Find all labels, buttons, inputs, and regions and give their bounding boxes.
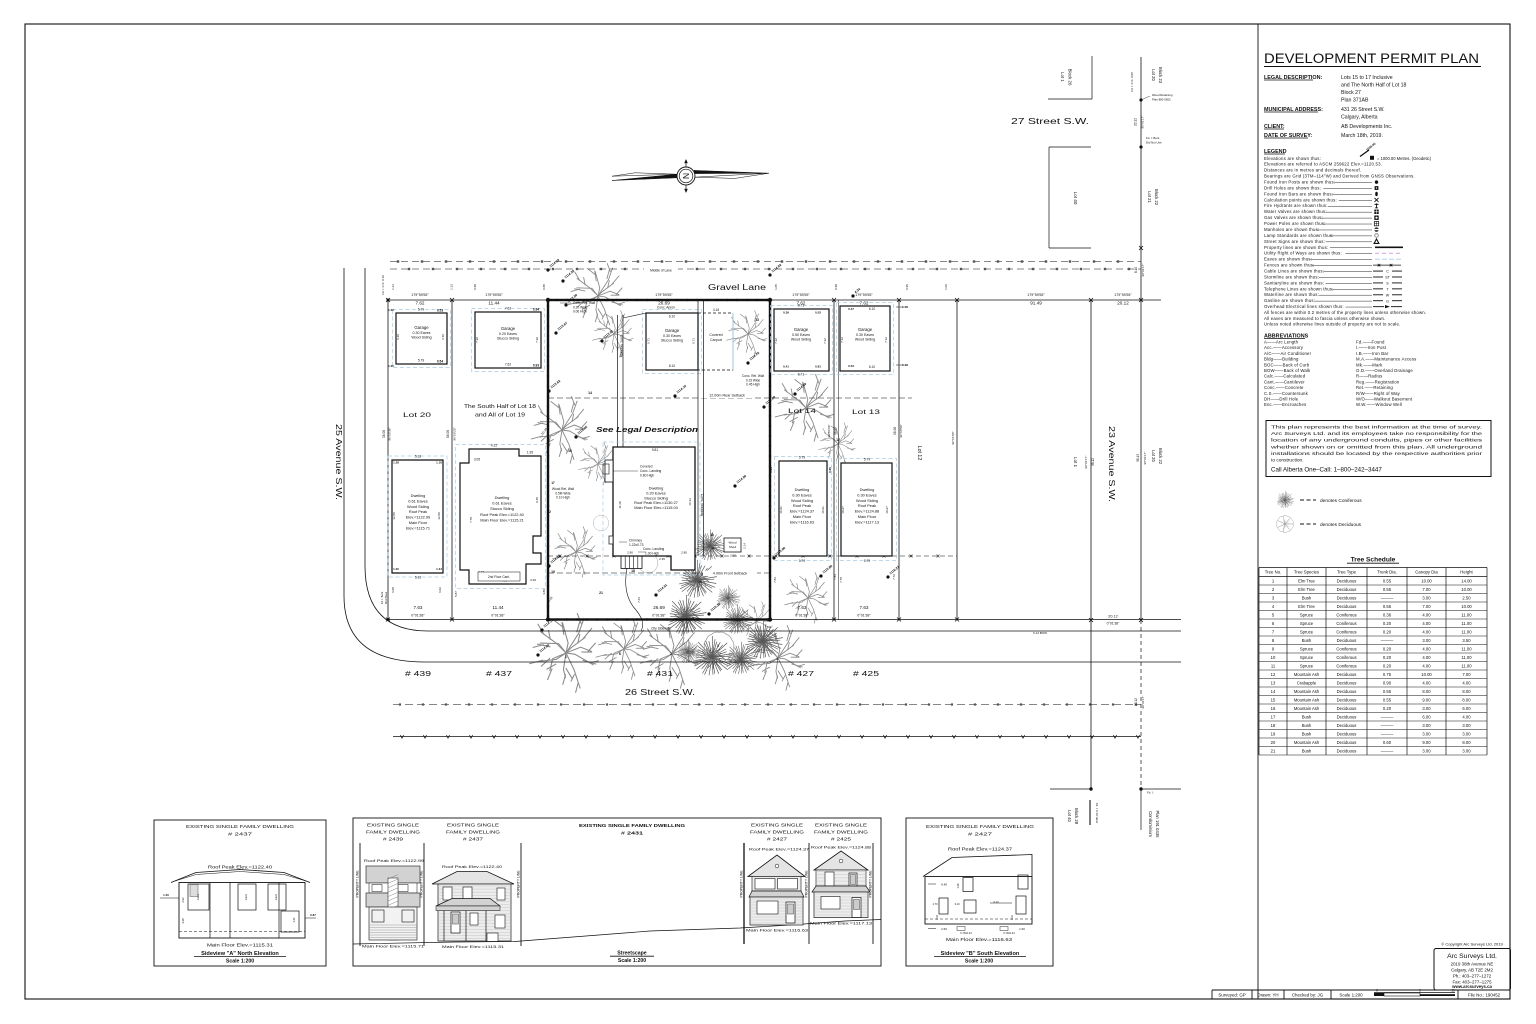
svg-text:3.00: 3.00 [1422,749,1431,754]
svg-text:Bearings are Grid (3TM–114°W): Bearings are Grid (3TM–114°W) and Derive… [1264,174,1415,179]
svg-text:6.71: 6.71 [647,338,651,344]
svg-text:4.00: 4.00 [1422,681,1431,686]
svg-text:18: 18 [631,569,635,573]
svg-text:Main Floor: Main Floor [409,520,428,525]
svg-text:21: 21 [599,591,603,595]
svg-text:90°01'17": 90°01'17" [1143,452,1147,465]
svg-text:Chimney: Chimney [629,539,642,543]
svg-text:Elm Tree: Elm Tree [1298,579,1315,584]
svg-text:Dwelling: Dwelling [795,487,810,492]
svg-text:Wood Siding: Wood Siding [791,498,813,503]
svg-text:0.30 Eaves: 0.30 Eaves [663,334,681,338]
svg-text:FAMILY DWELLING: FAMILY DWELLING [366,830,421,835]
svg-text:denotes Deciduous: denotes Deciduous [1320,522,1362,528]
svg-text:Deciduous: Deciduous [1337,740,1357,745]
svg-text:Fd. I. C.S. 0.08: Fd. I. C.S. 0.08 [1130,72,1134,92]
svg-text:6.08: 6.08 [391,587,395,593]
svg-text:2.60: 2.60 [941,927,947,931]
svg-text:7.78: 7.78 [839,577,843,583]
svg-text:3.10: 3.10 [954,902,960,906]
svg-text:0.36: 0.36 [1383,613,1392,618]
svg-text:Mountain Ash: Mountain Ash [1294,689,1320,694]
svg-text:Coniferous: Coniferous [1336,613,1356,618]
svg-text:ST: ST [1385,276,1390,280]
svg-text:12.80: 12.80 [437,512,441,520]
svg-text:3.00: 3.00 [1462,723,1471,728]
svg-text:90°01'17": 90°01'17" [1141,116,1145,129]
svg-text:6.40: 6.40 [396,334,400,340]
svg-text:# 2437: # 2437 [463,837,484,842]
svg-text:Wood Retaining: Wood Retaining [1152,93,1173,97]
svg-text:6.40: 6.40 [441,334,445,340]
svg-text:7.62: 7.62 [505,307,511,311]
svg-text:10.97: 10.97 [841,506,845,514]
svg-text:11.00: 11.00 [1461,613,1472,618]
svg-text:Calc.——Calculated: Calc.——Calculated [1264,374,1306,379]
svg-text:4.00: 4.00 [1422,630,1431,635]
svg-text:Bush: Bush [1302,715,1312,720]
svg-text:Ph.: 403–277–1272: Ph.: 403–277–1272 [1453,974,1492,979]
svg-text:0.70x0.24: 0.70x0.24 [960,931,972,935]
svg-text:4.00: 4.00 [1462,715,1471,720]
svg-text:Main Floor Elev.=1115.21: Main Floor Elev.=1115.21 [480,517,524,522]
svg-text:Deciduous: Deciduous [1337,596,1357,601]
svg-text:1.34: 1.34 [436,567,442,571]
svg-text:6.10: 6.10 [869,365,875,369]
svg-text:A——Arc Length: A——Arc Length [1264,340,1299,345]
svg-text:Manholes are shown thus:: Manholes are shown thus: [1264,227,1319,232]
svg-text:16.91: 16.91 [821,506,825,514]
svg-text:———: ——— [1381,723,1394,728]
svg-text:Roof Peak Elev.=1122.99: Roof Peak Elev.=1122.99 [364,858,425,863]
svg-text:Covered: Covered [640,465,653,469]
svg-text:Roof Peak Elev.=1124.37: Roof Peak Elev.=1124.37 [749,847,810,852]
svg-text:90°01'17": 90°01'17" [1141,264,1145,277]
svg-text:C.S.——Countersunk: C.S.——Countersunk [1264,391,1309,396]
svg-text:Mk.——Mark: Mk.——Mark [1356,362,1383,367]
svg-text:Spruce: Spruce [1300,621,1314,626]
svg-text:9.00: 9.00 [1422,698,1431,703]
svg-text:Gas Valves are shown thus:: Gas Valves are shown thus: [1264,215,1323,220]
svg-text:0.42: 0.42 [1011,915,1014,920]
svg-text:Calgary, AB T2E 2M2: Calgary, AB T2E 2M2 [1451,968,1493,973]
svg-text:4.16: 4.16 [713,308,719,312]
svg-text:Coniferous: Coniferous [1336,655,1356,660]
svg-text:Coniferous: Coniferous [1336,647,1356,652]
svg-text:0.20: 0.20 [1383,655,1392,660]
svg-text:Deciduous: Deciduous [1337,689,1357,694]
svg-text:2.80: 2.80 [627,551,633,555]
svg-text:1.08: 1.08 [902,305,908,309]
svg-text:7.62: 7.62 [860,301,869,306]
svg-text:# 2427: # 2427 [767,837,788,842]
svg-text:0°01'38": 0°01'38" [857,614,871,618]
svg-text:6.10: 6.10 [993,900,999,904]
svg-text:0.39: 0.39 [783,311,789,315]
svg-text:# 437: # 437 [486,669,512,678]
svg-text:location of any underground co: location of any underground conduits, pi… [1271,438,1483,444]
svg-text:Deciduous: Deciduous [1337,672,1357,677]
svg-text:Elm Tree: Elm Tree [1298,587,1315,592]
svg-text:Elev.=1116.63: Elev.=1116.63 [790,519,814,524]
svg-text:6.14 BOW: 6.14 BOW [1033,631,1047,635]
svg-text:38.12: 38.12 [1091,458,1095,466]
svg-text:2.92: 2.92 [181,897,185,903]
svg-text:Stormline are shown thus:: Stormline are shown thus: [1264,274,1319,279]
svg-text:11.00: 11.00 [1461,621,1472,626]
svg-text:38.07: 38.07 [833,427,837,435]
svg-text:Shot Base: Shot Base [384,591,388,604]
svg-text:———: ——— [1381,596,1394,601]
svg-text:Plan 880 0652: Plan 880 0652 [1152,98,1171,102]
svg-text:Deciduous: Deciduous [1337,587,1357,592]
svg-text:5.18: 5.18 [415,455,421,459]
svg-text:4.00: 4.00 [1422,647,1431,652]
svg-text:0°01'38": 0°01'38" [491,614,505,618]
svg-text:Mountain Ash: Mountain Ash [1294,706,1320,711]
svg-text:0.98: 0.98 [902,363,908,367]
svg-text:10.00: 10.00 [1421,579,1432,584]
svg-text:Crabapple: Crabapple [1297,681,1317,686]
svg-text:Deciduous: Deciduous [1337,698,1357,703]
svg-text:1.06: 1.06 [944,284,948,290]
svg-text:7.32: 7.32 [823,338,827,344]
svg-text:Cant.——Cantilever: Cant.——Cantilever [1264,379,1305,384]
svg-text:179°59'55": 179°59'55" [1027,293,1045,297]
svg-text:R/W——Right of Way: R/W——Right of Way [1356,391,1401,396]
svg-text:# 2427: # 2427 [968,832,993,838]
svg-text:Gravel Lane: Gravel Lane [708,282,766,292]
svg-text:Calgary, Alberta: Calgary, Alberta [1341,115,1378,121]
svg-text:16: 16 [568,449,572,453]
svg-text:20.12: 20.12 [1108,615,1118,619]
svg-text:11.44: 11.44 [488,301,500,306]
svg-text:Wood Siding: Wood Siding [856,498,878,503]
svg-text:8.10: 8.10 [1134,267,1138,273]
svg-text:Garage: Garage [858,327,873,332]
svg-text:7.32: 7.32 [840,337,844,343]
svg-text:Elevations are shown thus:: Elevations are shown thus: [1264,156,1321,161]
svg-text:90°04'06": 90°04'06" [827,424,831,437]
svg-text:9.48: 9.48 [941,883,947,887]
svg-text:Covered: Covered [709,333,722,337]
svg-text:3.05: 3.05 [474,458,480,462]
svg-text:and The North Half of Lot 18: and The North Half of Lot 18 [1341,83,1406,89]
svg-text:Property lines are shown thus:: Property lines are shown thus: [1264,245,1328,250]
svg-text:Wood Siding: Wood Siding [791,338,811,342]
svg-text:Block 27: Block 27 [1341,90,1361,96]
svg-text:10.97: 10.97 [885,506,889,514]
svg-text:0.55: 0.55 [1383,587,1392,592]
svg-text:Fd.——Found: Fd.——Found [1356,340,1385,345]
svg-text:1.30: 1.30 [393,567,399,571]
svg-text:20: 20 [1271,740,1276,745]
svg-text:PROPERTY LINE: PROPERTY LINE [356,870,360,898]
svg-text:11.00: 11.00 [1461,664,1472,669]
svg-text:Checked by: JG: Checked by: JG [1292,993,1324,998]
svg-text:1.60: 1.60 [1019,927,1025,931]
svg-text:Drill Holes are shown thus:: Drill Holes are shown thus: [1264,185,1321,190]
svg-text:0.55: 0.55 [1383,604,1392,609]
svg-text:7.32: 7.32 [884,337,888,343]
svg-text:9.81: 9.81 [652,448,658,452]
svg-text:whether shown on or omitted fr: whether shown on or omitted from this pl… [1271,444,1483,450]
svg-text:Did Not Use: Did Not Use [1146,141,1162,145]
svg-text:1.30: 1.30 [388,364,394,368]
svg-text:Conc. Landing: Conc. Landing [643,547,664,551]
svg-text:11: 11 [710,533,714,537]
svg-text:91.49: 91.49 [1030,301,1042,306]
svg-text:EXISTING SINGLE: EXISTING SINGLE [815,823,867,828]
svg-text:Eaves are shown thus:: Eaves are shown thus: [1264,257,1312,262]
svg-text:The South Half of Lot 18: The South Half of Lot 18 [464,404,536,410]
svg-text:Sideview "A" North Elevation: Sideview "A" North Elevation [201,951,279,957]
svg-text:Elev.=1115.71: Elev.=1115.71 [406,525,430,530]
svg-text:5.79: 5.79 [799,559,805,563]
svg-text:2.50: 2.50 [1462,596,1471,601]
svg-text:26.69: 26.69 [653,605,665,610]
svg-text:Dwelling: Dwelling [495,495,510,500]
svg-text:6.10: 6.10 [669,315,675,319]
svg-text:PROPERTY LINE: PROPERTY LINE [740,870,744,898]
svg-text:8.00: 8.00 [1462,689,1471,694]
svg-text:N: N [681,173,691,179]
svg-text:Block 28: Block 28 [1074,808,1079,825]
svg-text:0.45 High: 0.45 High [746,383,760,387]
svg-text:14: 14 [1271,689,1276,694]
svg-text:and All of Lot 19: and All of Lot 19 [475,413,525,419]
svg-text:= 1000.00 Metres. (Geodetic): = 1000.00 Metres. (Geodetic) [1377,156,1432,161]
svg-text:9.00: 9.00 [1422,740,1431,745]
svg-text:Found Iron Posts are shown thu: Found Iron Posts are shown thus: [1264,180,1335,185]
svg-text:14.33: 14.33 [688,498,692,506]
svg-text:0.98: 0.98 [834,284,838,290]
svg-text:Cant.: Cant. [196,894,200,901]
svg-text:EXISTING SINGLE FAMILY DWELLIN: EXISTING SINGLE FAMILY DWELLING [186,824,295,829]
svg-text:5.79: 5.79 [864,559,870,563]
svg-text:Stucco Siding: Stucco Siding [661,339,683,343]
svg-text:Spruce: Spruce [1300,655,1314,660]
svg-text:3.00: 3.00 [1422,706,1431,711]
svg-text:3.00: 3.00 [1422,638,1431,643]
svg-text:0°01'38": 0°01'38" [411,614,425,618]
svg-text:Lot 40: Lot 40 [1073,192,1078,205]
svg-text:0.20: 0.20 [1383,630,1392,635]
svg-text:26 Street S.W.: 26 Street S.W. [625,688,695,697]
svg-text:Scale 1:200: Scale 1:200 [1339,993,1363,998]
svg-text:Lot 40: Lot 40 [1067,810,1072,822]
svg-text:2.80: 2.80 [681,551,687,555]
svg-text:I.——Iron Post: I.——Iron Post [1356,345,1387,350]
svg-text:1.23: 1.23 [450,284,454,290]
svg-text:Spruce: Spruce [1300,613,1314,618]
svg-text:Elev.=1117.13: Elev.=1117.13 [855,519,879,524]
svg-text:Wood Siding: Wood Siding [411,336,431,340]
svg-text:All fences are within 0.2 metr: All fences are within 0.2 metres of the … [1264,310,1426,315]
svg-text:EXISTING SINGLE FAMILY DWELLIN: EXISTING SINGLE FAMILY DWELLING [926,824,1035,829]
svg-text:FAMILY DWELLING: FAMILY DWELLING [814,830,869,835]
svg-text:0.30 Eaves: 0.30 Eaves [857,492,877,497]
svg-text:5.79: 5.79 [864,458,870,462]
svg-text:Ret.——Retaining: Ret.——Retaining [1356,385,1393,390]
svg-text:23 Avenue S.W.: 23 Avenue S.W. [1107,426,1116,502]
svg-text:R——Radius: R——Radius [1356,374,1382,379]
svg-text:5.87: 5.87 [454,591,458,597]
svg-text:Roof Peak: Roof Peak [858,503,876,508]
svg-text:Tree Type: Tree Type [1337,570,1357,575]
svg-text:0.53: 0.53 [437,309,443,313]
svg-text:Scale 1:200: Scale 1:200 [618,958,646,964]
svg-text:11.38: 11.38 [618,501,622,509]
svg-text:10: 10 [698,580,702,584]
svg-text:0.20: 0.20 [1383,647,1392,652]
svg-text:17: 17 [1271,715,1276,720]
svg-text:BOW——Back of Walk: BOW——Back of Walk [1264,368,1311,373]
svg-text:0.88: 0.88 [542,284,546,290]
svg-text:Scale 1:200: Scale 1:200 [965,959,993,965]
svg-text:7.78: 7.78 [469,517,473,523]
svg-text:12: 12 [1271,672,1276,677]
svg-text:0.41: 0.41 [783,365,789,369]
svg-text:Lot 20: Lot 20 [1151,69,1156,81]
svg-text:Coniferous: Coniferous [1336,621,1356,626]
svg-text:Cant.: Cant. [274,894,278,901]
svg-text:0.20 Eaves: 0.20 Eaves [499,332,517,336]
svg-text:Unless noted otherwise lines o: Unless noted otherwise lines outside of … [1264,321,1400,326]
svg-text:9.45: 9.45 [535,497,539,503]
svg-text:1.31: 1.31 [391,284,395,290]
svg-text:90°01'17": 90°01'17" [1084,456,1088,469]
svg-text:1.70: 1.70 [932,902,938,906]
svg-text:M.A.——Maintenance Access: M.A.——Maintenance Access [1356,357,1416,362]
svg-text:3.50: 3.50 [1462,638,1471,643]
svg-text:7.30: 7.30 [535,337,539,343]
svg-text:0.93: 0.93 [533,364,539,368]
svg-text:Found Iron Bars are shown thus: Found Iron Bars are shown thus: [1264,191,1333,196]
svg-text:Stucco Siding: Stucco Siding [497,337,519,341]
svg-text:0.93: 0.93 [769,467,773,473]
svg-text:Scale 1:200: Scale 1:200 [226,959,254,965]
svg-text:Roof Peak Elev.=1122.40: Roof Peak Elev.=1122.40 [442,864,503,869]
svg-text:179°59'55": 179°59'55" [485,293,503,297]
svg-text:Power Poles are shown thus:: Power Poles are shown thus: [1264,221,1326,226]
svg-text:EXISTING SINGLE FAMILY DWELLIN: EXISTING SINGLE FAMILY DWELLING [579,823,685,828]
svg-text:0.80 High: 0.80 High [640,474,654,478]
svg-text:Streetscape: Streetscape [617,951,647,957]
svg-text:All eaves are measured to fasc: All eaves are measured to fascia unless … [1264,316,1386,321]
svg-text:90°01'17": 90°01'17" [1141,696,1145,709]
svg-text:# 2431: # 2431 [621,831,643,837]
svg-text:EXISTING SINGLE: EXISTING SINGLE [751,823,803,828]
svg-text:4.80: 4.80 [542,589,546,595]
svg-text:1.28: 1.28 [393,461,399,465]
svg-text:11.00: 11.00 [1461,630,1472,635]
svg-text:0.70x0.24: 0.70x0.24 [1003,931,1015,935]
svg-text:1.36: 1.36 [956,883,960,889]
svg-text:0°01'38": 0°01'38" [652,614,666,618]
svg-text:0.40: 0.40 [936,915,939,920]
svg-text:7.84: 7.84 [833,574,837,580]
svg-text:0.94: 0.94 [533,308,539,312]
svg-text:PROPERTY LINE: PROPERTY LINE [869,870,873,898]
svg-text:5.79: 5.79 [418,308,424,312]
svg-text:Conc. Apron: Conc. Apron [657,306,675,310]
svg-text:0.90: 0.90 [1383,681,1392,686]
svg-text:Fd. I. C.S. 0.10: Fd. I. C.S. 0.10 [381,275,385,295]
svg-text:Fences are shown thus:: Fences are shown thus: [1264,263,1314,268]
svg-text:3.00: 3.00 [1422,596,1431,601]
svg-text:Lot 20: Lot 20 [1151,450,1156,462]
svg-text:Elev.=1122.99: Elev.=1122.99 [406,515,430,520]
svg-text:Lot 12: Lot 12 [916,446,922,461]
svg-text:17: 17 [551,481,555,485]
svg-text:G: G [1386,299,1389,303]
svg-text:38.05: 38.05 [382,430,386,438]
svg-text:Arc Surveys Ltd. and its emplo: Arc Surveys Ltd. and its employees take … [1271,431,1483,437]
svg-text:Fd. I. Bent: Fd. I. Bent [380,592,384,605]
svg-text:7.63: 7.63 [860,605,869,610]
svg-text:6.00: 6.00 [1462,706,1471,711]
svg-text:denotes Coniferous: denotes Coniferous [1320,498,1362,504]
svg-text:Garage: Garage [794,327,809,332]
svg-text:Height: Height [1460,570,1473,575]
svg-text:7.62: 7.62 [505,363,511,367]
svg-text:Bush: Bush [1302,732,1312,737]
svg-text:Tree No.: Tree No. [1265,570,1282,575]
svg-text:March 18th, 2019.: March 18th, 2019. [1341,133,1383,139]
svg-text:Bush: Bush [1302,723,1312,728]
svg-text:7.32: 7.32 [774,338,778,344]
svg-text:6.00: 6.00 [1422,715,1431,720]
svg-text:3.93: 3.93 [530,578,536,582]
svg-text:7.63: 7.63 [637,597,641,603]
svg-text:1.30: 1.30 [388,308,394,312]
svg-text:1.00 High: 1.00 High [645,552,659,556]
svg-text:Lamp Standards are shown thus:: Lamp Standards are shown thus: [1264,233,1334,238]
svg-text:Roof Peak Elev.=1122.40: Roof Peak Elev.=1122.40 [208,865,273,870]
svg-text:AB Developments Inc.: AB Developments Inc. [1341,124,1392,130]
svg-text:DEVELOPMENT PERMIT PLAN: DEVELOPMENT PERMIT PLAN [1264,51,1479,66]
svg-text:Waterline are shown thus:: Waterline are shown thus: [1264,292,1319,297]
svg-text:EXISTING SINGLE: EXISTING SINGLE [367,823,419,828]
svg-text:Tree Species: Tree Species [1294,570,1319,575]
svg-text:0.53: 0.53 [848,364,854,368]
svg-text:to construction.: to construction. [1271,458,1304,464]
svg-text:PROPERTY LINE: PROPERTY LINE [517,870,521,898]
svg-text:Deciduous: Deciduous [1337,715,1357,720]
svg-text:11.44: 11.44 [492,605,504,610]
svg-text:3.00: 3.00 [1422,732,1431,737]
svg-text:Bush: Bush [1302,596,1312,601]
svg-text:7.00: 7.00 [1462,672,1471,677]
svg-text:W/O——Walkout Basement: W/O——Walkout Basement [1356,397,1413,402]
svg-text:Garage: Garage [414,325,429,330]
svg-text:4.12: 4.12 [491,444,497,448]
svg-text:0.20: 0.20 [1383,706,1392,711]
svg-text:Conc.——Concrete: Conc.——Concrete [1264,385,1304,390]
svg-text:BOC——Back of Curb: BOC——Back of Curb [1264,362,1310,367]
svg-text:0.61 Eaves: 0.61 Eaves [492,501,512,506]
svg-text:0.10 High: 0.10 High [556,496,570,500]
svg-text:Fire Hydrants are shown thus:: Fire Hydrants are shown thus: [1264,203,1328,208]
svg-text:38.08: 38.08 [893,427,897,435]
svg-text:0.61 Eaves: 0.61 Eaves [408,498,428,503]
svg-text:installations should be locate: installations should be located by the r… [1271,451,1483,457]
svg-text:Arc Surveys Ltd.: Arc Surveys Ltd. [1447,953,1497,960]
svg-text:W: W [1386,293,1390,297]
svg-text:20.12: 20.12 [1117,301,1129,306]
svg-text:3.00: 3.00 [1422,723,1431,728]
